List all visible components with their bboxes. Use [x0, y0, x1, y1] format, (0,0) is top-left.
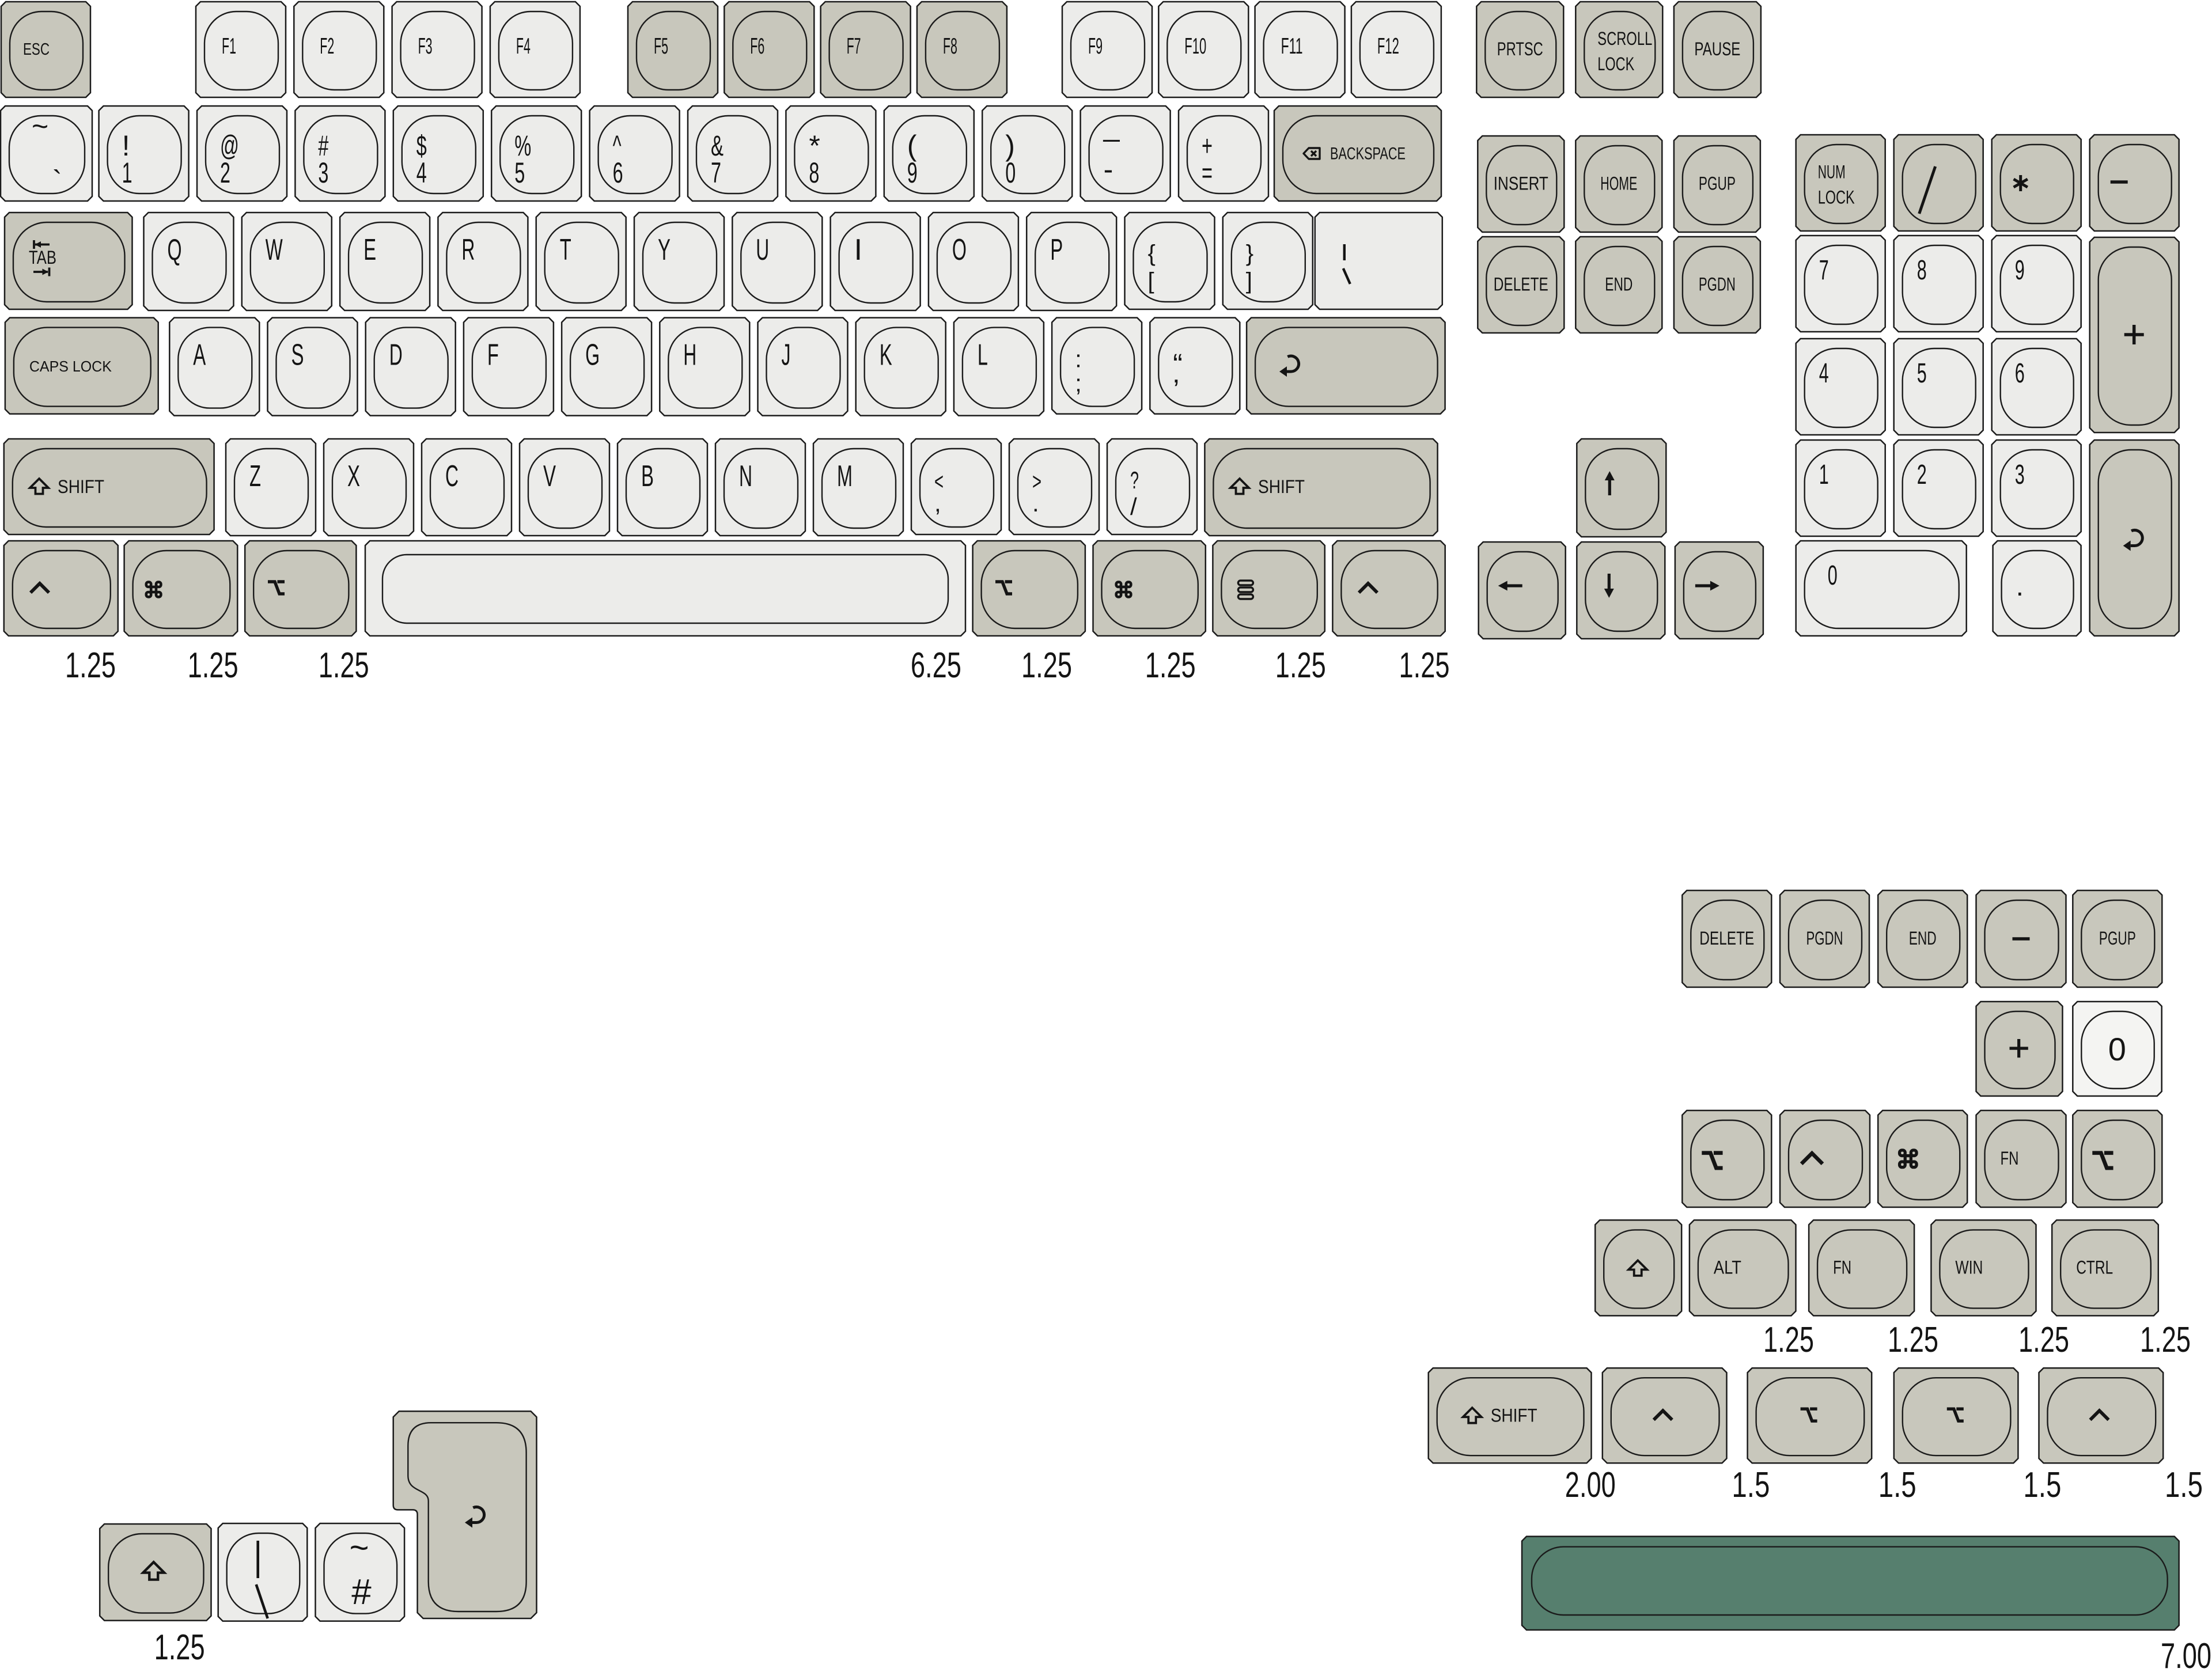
svg-text:INSERT: INSERT [1494, 173, 1548, 194]
svg-text:1.5: 1.5 [2023, 1465, 2061, 1505]
svg-text:F8: F8 [943, 34, 957, 59]
svg-text:Q: Q [168, 233, 182, 267]
svg-text:FN: FN [1833, 1257, 1851, 1277]
svg-text:3: 3 [318, 157, 328, 189]
svg-text:TAB: TAB [29, 247, 56, 268]
svg-text:4: 4 [1819, 358, 1829, 389]
svg-text:CTRL: CTRL [2076, 1257, 2113, 1277]
svg-text:F10: F10 [1184, 34, 1206, 59]
svg-text:9: 9 [907, 157, 918, 189]
svg-text:SHIFT: SHIFT [1491, 1405, 1537, 1426]
svg-text:F2: F2 [320, 34, 334, 59]
svg-text:8: 8 [1917, 255, 1927, 286]
svg-text:I: I [854, 233, 862, 267]
svg-text:1.25: 1.25 [1275, 646, 1326, 685]
svg-text:=: = [1202, 157, 1213, 189]
svg-text:P: P [1050, 233, 1063, 267]
svg-text:-: - [1104, 153, 1113, 185]
svg-text:F: F [487, 339, 499, 372]
svg-text:2: 2 [1917, 460, 1927, 490]
svg-text:PGUP: PGUP [1699, 173, 1736, 194]
svg-text:_: _ [1103, 110, 1120, 142]
svg-text:3: 3 [2015, 460, 2025, 490]
svg-text:2: 2 [220, 157, 230, 189]
svg-text:LOCK: LOCK [1597, 54, 1634, 74]
svg-text:J: J [782, 339, 791, 372]
svg-text:BACKSPACE: BACKSPACE [1330, 145, 1406, 164]
svg-text:{: { [1148, 241, 1156, 266]
svg-text:?: ? [1130, 467, 1139, 494]
svg-text:A: A [193, 339, 206, 372]
svg-text:1.25: 1.25 [1145, 646, 1196, 685]
svg-text:.: . [1032, 490, 1039, 517]
svg-text:]: ] [1246, 268, 1252, 294]
svg-text:Z: Z [249, 460, 261, 493]
svg-text:1.25: 1.25 [2140, 1320, 2191, 1360]
svg-text:0: 0 [1005, 157, 1016, 189]
svg-text:1: 1 [122, 157, 132, 189]
svg-text:Y: Y [658, 233, 671, 267]
svg-text:N: N [739, 460, 752, 493]
svg-text:}: } [1246, 241, 1253, 266]
svg-text:4: 4 [416, 157, 427, 189]
svg-text:E: E [363, 233, 376, 267]
svg-text:1.25: 1.25 [1021, 646, 1072, 685]
svg-text:`: ` [52, 165, 62, 197]
svg-text:END: END [1909, 928, 1937, 949]
svg-text:O: O [952, 233, 967, 267]
svg-text:FN: FN [2001, 1148, 2019, 1169]
svg-text:SCROLL: SCROLL [1597, 28, 1652, 49]
svg-text:NUM: NUM [1818, 162, 1846, 183]
svg-text:6.25: 6.25 [911, 646, 961, 685]
svg-text:~: ~ [350, 1529, 369, 1567]
svg-text:.: . [2016, 571, 2024, 602]
svg-text:8: 8 [809, 157, 819, 189]
svg-text:T: T [560, 233, 571, 267]
svg-text:5: 5 [1917, 358, 1927, 389]
svg-text:#: # [351, 1572, 372, 1612]
svg-text:9: 9 [2015, 255, 2025, 286]
svg-text:,: , [934, 490, 941, 517]
svg-text:END: END [1605, 274, 1633, 295]
svg-text:SHIFT: SHIFT [1258, 476, 1305, 497]
svg-text::: : [1075, 346, 1082, 373]
svg-text:PGDN: PGDN [1806, 928, 1843, 949]
svg-text:F7: F7 [847, 34, 861, 59]
svg-text:7: 7 [711, 157, 721, 189]
svg-text:F4: F4 [516, 34, 531, 59]
svg-text:1.5: 1.5 [2165, 1465, 2203, 1505]
svg-text:HOME: HOME [1600, 173, 1637, 194]
svg-text:~: ~ [32, 110, 48, 142]
svg-text:F6: F6 [750, 34, 764, 59]
svg-text:F9: F9 [1088, 34, 1103, 59]
svg-text:/: / [1130, 493, 1137, 520]
svg-text:W: W [266, 233, 283, 267]
svg-text:0: 0 [1828, 560, 1838, 591]
svg-text:R: R [461, 233, 475, 267]
svg-text:U: U [756, 233, 769, 267]
svg-text:F3: F3 [418, 34, 433, 59]
svg-text:L: L [978, 339, 988, 372]
svg-text:V: V [543, 460, 556, 493]
svg-text:WIN: WIN [1955, 1257, 1983, 1277]
svg-text:S: S [291, 339, 304, 372]
svg-text:5: 5 [514, 157, 525, 189]
svg-text:PAUSE: PAUSE [1694, 39, 1740, 59]
svg-text:ALT: ALT [1714, 1257, 1741, 1277]
svg-text:1.25: 1.25 [319, 646, 369, 685]
svg-text:6: 6 [613, 157, 623, 189]
svg-text:ESC: ESC [23, 40, 50, 59]
svg-text:7: 7 [1819, 255, 1829, 286]
svg-text:1.25: 1.25 [1763, 1320, 1814, 1360]
svg-text:1: 1 [1819, 460, 1829, 490]
svg-text:F5: F5 [654, 34, 668, 59]
svg-text:1.25: 1.25 [188, 646, 238, 685]
svg-text:;: ; [1075, 370, 1082, 397]
svg-text:M: M [837, 460, 853, 493]
svg-text:’: ’ [1173, 374, 1179, 406]
svg-text:K: K [880, 339, 892, 372]
svg-text:2.00: 2.00 [1565, 1465, 1616, 1505]
svg-text:X: X [347, 460, 360, 493]
svg-text:PGDN: PGDN [1699, 274, 1736, 295]
svg-text:1.25: 1.25 [65, 646, 116, 685]
svg-text:6: 6 [2015, 358, 2025, 389]
svg-text:DELETE: DELETE [1494, 274, 1548, 295]
svg-text:CAPS LOCK: CAPS LOCK [29, 358, 112, 375]
svg-text:[: [ [1148, 268, 1154, 294]
svg-text:1.25: 1.25 [1399, 646, 1450, 685]
svg-text:G: G [585, 339, 600, 372]
svg-text:7.00: 7.00 [2161, 1636, 2211, 1672]
svg-text:H: H [683, 339, 696, 372]
svg-text:D: D [389, 339, 403, 372]
svg-text:1.25: 1.25 [154, 1628, 205, 1667]
svg-text:SHIFT: SHIFT [58, 476, 104, 497]
svg-text:1.5: 1.5 [1732, 1465, 1770, 1505]
svg-text:B: B [641, 460, 654, 493]
svg-text:0: 0 [2108, 1031, 2126, 1067]
svg-text:PRTSC: PRTSC [1497, 39, 1543, 59]
svg-text:1.5: 1.5 [1878, 1465, 1916, 1505]
svg-text:DELETE: DELETE [1699, 928, 1754, 949]
svg-text:LOCK: LOCK [1818, 187, 1855, 208]
svg-text:F1: F1 [222, 34, 236, 59]
svg-text:1.25: 1.25 [1888, 1320, 1938, 1360]
svg-text:F12: F12 [1377, 34, 1399, 59]
svg-text:1.25: 1.25 [2018, 1320, 2069, 1360]
svg-text:PGUP: PGUP [2099, 928, 2136, 949]
svg-text:C: C [445, 460, 459, 493]
svg-text:F11: F11 [1281, 34, 1303, 59]
